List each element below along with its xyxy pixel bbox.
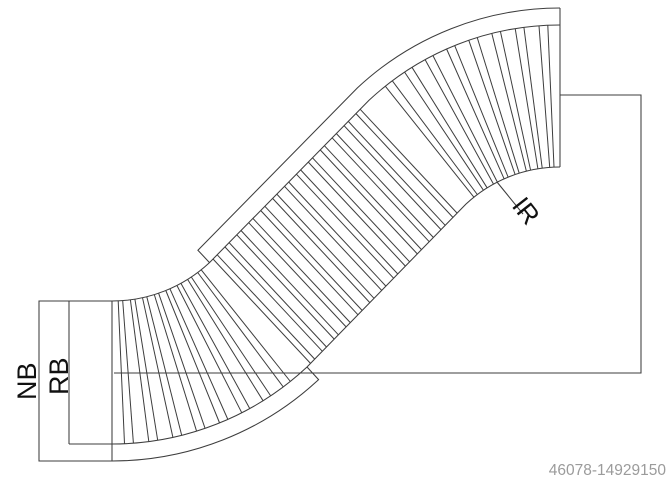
straight-section-slats bbox=[213, 109, 457, 363]
slat-line bbox=[201, 270, 290, 382]
slat-line bbox=[229, 243, 326, 347]
lower-curve-slats bbox=[118, 270, 290, 444]
belt-bottom-edge bbox=[112, 167, 560, 444]
label-nb: NB bbox=[12, 362, 42, 400]
slat-line bbox=[261, 211, 358, 315]
slat-line bbox=[123, 301, 134, 444]
watermark-gear-icon bbox=[544, 56, 619, 129]
belt-top-edge bbox=[112, 25, 560, 301]
slat-line bbox=[336, 134, 433, 238]
slat-line bbox=[265, 206, 362, 310]
slat-line bbox=[289, 182, 386, 286]
slat-line bbox=[273, 198, 370, 302]
upper-curve-outer-guard bbox=[198, 8, 560, 263]
slat-line bbox=[412, 67, 487, 188]
slat-line bbox=[539, 26, 550, 168]
slat-line bbox=[500, 31, 530, 170]
slat-line bbox=[217, 255, 315, 359]
slat-line bbox=[225, 247, 323, 351]
conveyor-plan-drawing: NB RB IR 46078-14929150 bbox=[0, 0, 669, 480]
slat-line bbox=[548, 25, 554, 167]
slat-line bbox=[159, 293, 206, 428]
slat-line bbox=[181, 283, 250, 408]
slat-line bbox=[385, 86, 474, 197]
slat-line bbox=[469, 40, 515, 174]
slat-line bbox=[237, 235, 334, 339]
slat-line bbox=[324, 146, 421, 250]
technical-drawing-canvas: NB RB IR 46078-14929150 bbox=[0, 0, 669, 480]
slat-line bbox=[253, 218, 350, 322]
slat-line bbox=[249, 223, 346, 327]
slat-line bbox=[320, 150, 417, 254]
slat-line bbox=[170, 289, 228, 420]
slat-line bbox=[213, 259, 311, 363]
gear-icon bbox=[545, 56, 619, 129]
slat-line bbox=[313, 158, 410, 262]
slat-line bbox=[277, 194, 374, 298]
slat-line bbox=[356, 114, 453, 218]
slat-line bbox=[241, 231, 338, 335]
slat-line bbox=[198, 273, 284, 388]
watermark-id-text: 46078-14929150 bbox=[549, 462, 667, 479]
lower-curve-outer-guard bbox=[112, 367, 319, 461]
slat-line bbox=[392, 81, 477, 195]
slat-line bbox=[308, 162, 405, 266]
slat-line bbox=[188, 279, 264, 400]
label-ir: IR bbox=[506, 191, 546, 230]
slat-line bbox=[332, 138, 429, 242]
slat-line bbox=[285, 186, 382, 290]
slat-line bbox=[360, 109, 457, 213]
slat-line bbox=[301, 170, 398, 274]
slat-line bbox=[143, 298, 173, 438]
slat-line bbox=[344, 126, 441, 230]
slat-line bbox=[296, 174, 393, 278]
slat-line bbox=[118, 301, 124, 444]
label-rb: RB bbox=[44, 357, 74, 395]
slat-line bbox=[348, 121, 445, 225]
